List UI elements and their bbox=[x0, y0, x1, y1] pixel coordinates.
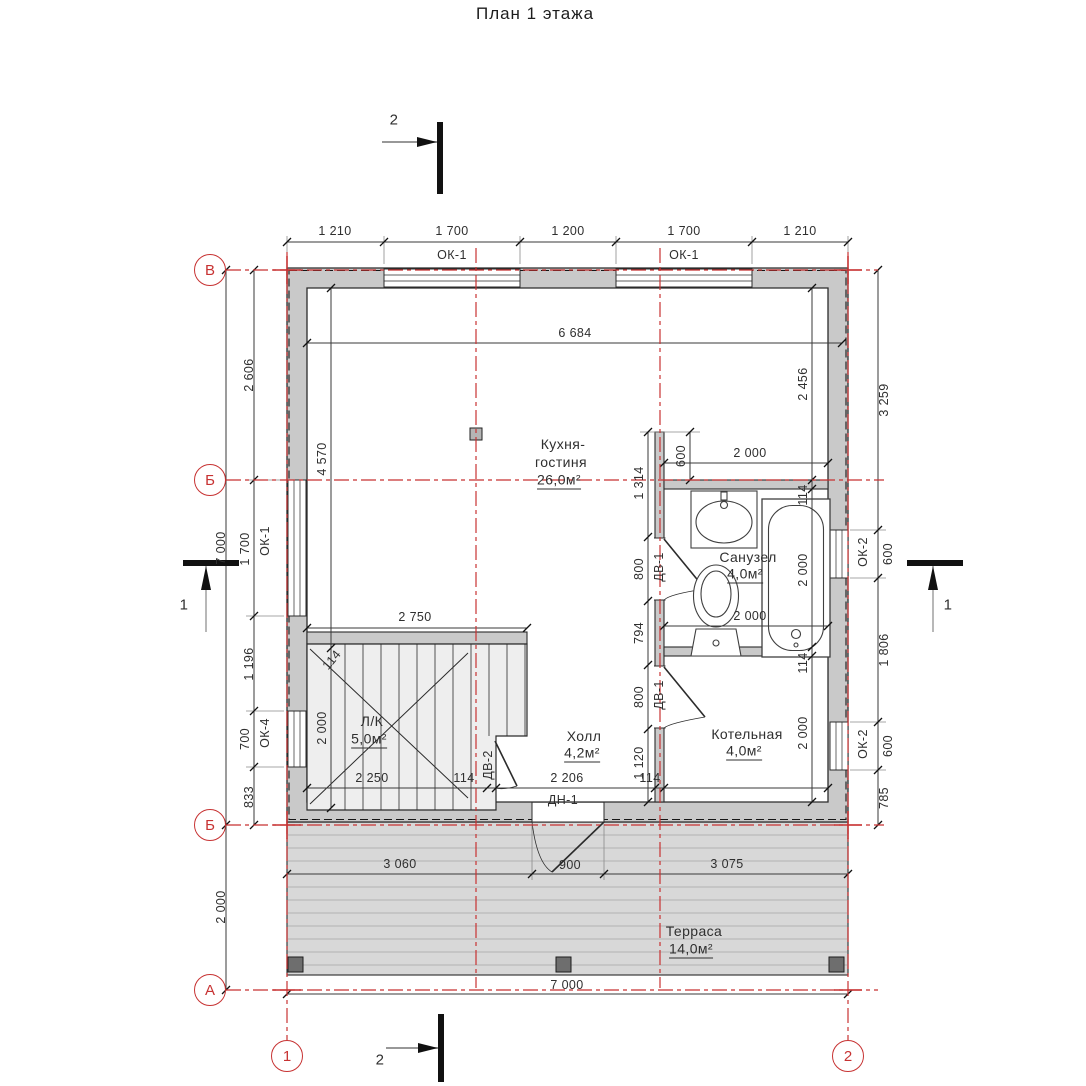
window-label-ok2-upper: ОК-2 bbox=[857, 537, 870, 567]
dim-bath-bottom: 2 000 bbox=[733, 610, 766, 623]
room-bathroom-area: 4,0м² bbox=[727, 567, 763, 584]
room-stair-name: Л/К bbox=[361, 714, 383, 728]
window-label-ok1-top-right: ОК-1 bbox=[669, 249, 699, 262]
dim-stair-bottom: 2 250 bbox=[355, 772, 388, 785]
dim-right-1: 3 259 bbox=[878, 383, 891, 416]
dim-terrace-2: 3 075 bbox=[710, 858, 743, 871]
axis-row-b-lower: Б bbox=[194, 809, 226, 841]
door-label-dv1-bath: ДВ-1 bbox=[653, 552, 666, 582]
dim-bath-height: 2 000 bbox=[797, 553, 810, 586]
section-mark-2-top-label: 2 bbox=[390, 113, 399, 128]
dim-stair-length: 2 750 bbox=[398, 611, 431, 624]
axis-col-1: 1 bbox=[271, 1040, 303, 1072]
dim-wall-mid: 794 bbox=[633, 622, 646, 644]
dim-left-1: 2 606 bbox=[243, 358, 256, 391]
dim-left-3: 1 196 bbox=[243, 647, 256, 680]
window-label-ok4-left: ОК-4 bbox=[259, 718, 272, 748]
window-label-ok1-left: ОК-1 bbox=[259, 526, 272, 556]
room-hall-name: Холл bbox=[567, 729, 602, 743]
window-label-ok2-lower: ОК-2 bbox=[857, 729, 870, 759]
room-kitchen-line1: Кухня- bbox=[541, 437, 586, 451]
room-terrace-area: 14,0м² bbox=[669, 942, 713, 959]
room-bathroom-name: Санузел bbox=[719, 550, 776, 564]
dim-top-5: 1 210 bbox=[783, 225, 816, 238]
door-label-dv2-stair: ДВ-2 bbox=[482, 750, 495, 780]
annotation-overlay: 1 2101 7001 2001 7001 210ОК-1ОК-17 0002 … bbox=[0, 0, 1086, 1086]
section-mark-1-left-label: 1 bbox=[180, 598, 189, 613]
dim-bottom-total: 7 000 bbox=[550, 979, 583, 992]
dim-top-3: 1 200 bbox=[551, 225, 584, 238]
axis-row-a: А bbox=[194, 974, 226, 1006]
dim-right-4: 600 bbox=[882, 735, 895, 757]
floor-plan-drawing: План 1 этажа 1 2101 7001 2001 7001 210ОК… bbox=[0, 0, 1086, 1086]
dim-bath-wall: 114 bbox=[797, 484, 810, 505]
dim-terrace-1: 3 060 bbox=[383, 858, 416, 871]
room-terrace-name: Терраса bbox=[666, 924, 723, 938]
dim-right-2: 600 bbox=[882, 543, 895, 565]
dim-left-terrace: 2 000 bbox=[215, 890, 228, 923]
dim-top-2: 1 700 bbox=[435, 225, 468, 238]
dim-hall: 2 206 bbox=[550, 772, 583, 785]
dim-bath-top: 2 000 bbox=[733, 447, 766, 460]
room-kitchen-area: 26,0м² bbox=[537, 473, 581, 490]
dim-top-1: 1 210 bbox=[318, 225, 351, 238]
window-label-ok1-top-left: ОК-1 bbox=[437, 249, 467, 262]
dim-door1: 800 bbox=[633, 558, 646, 580]
dim-stair-wall: 114 bbox=[320, 648, 343, 672]
section-mark-1-right-label: 1 bbox=[944, 598, 953, 613]
dim-stair-stub: 114 bbox=[453, 772, 474, 785]
door-label-dn1-entry: ДН-1 bbox=[548, 794, 578, 807]
dim-int-right: 2 456 bbox=[797, 367, 810, 400]
dim-boiler-wall: 114 bbox=[797, 652, 810, 673]
dim-stair-width: 2 000 bbox=[316, 711, 329, 744]
dim-wall-top: 1 314 bbox=[633, 466, 646, 499]
dim-int-width: 6 684 bbox=[558, 327, 591, 340]
dim-terrace-door: 900 bbox=[559, 859, 581, 872]
dim-left-5: 833 bbox=[243, 786, 256, 808]
room-boiler-name: Котельная bbox=[711, 727, 782, 741]
section-mark-2-bottom-label: 2 bbox=[376, 1053, 385, 1068]
axis-col-2: 2 bbox=[832, 1040, 864, 1072]
dim-bath-offset: 600 bbox=[675, 445, 688, 467]
dim-left-4: 700 bbox=[239, 728, 252, 750]
dim-hall-wall: 114 bbox=[639, 772, 660, 785]
door-label-dv1-boiler: ДВ-1 bbox=[653, 680, 666, 710]
dim-door2: 800 bbox=[633, 686, 646, 708]
dim-int-height: 4 570 bbox=[316, 442, 329, 475]
room-hall-area: 4,2м² bbox=[564, 746, 600, 763]
room-boiler-area: 4,0м² bbox=[726, 744, 762, 761]
dim-top-4: 1 700 bbox=[667, 225, 700, 238]
dim-right-3: 1 806 bbox=[878, 633, 891, 666]
room-stair-area: 5,0м² bbox=[351, 732, 387, 749]
dim-left-total: 7 000 bbox=[215, 531, 228, 564]
room-kitchen-line2: гостиня bbox=[535, 455, 587, 469]
dim-right-5: 785 bbox=[878, 787, 891, 809]
dim-boiler-height: 2 000 bbox=[797, 716, 810, 749]
dim-left-2: 1 700 bbox=[239, 532, 252, 565]
axis-row-v: В bbox=[194, 254, 226, 286]
axis-row-b-upper: Б bbox=[194, 464, 226, 496]
